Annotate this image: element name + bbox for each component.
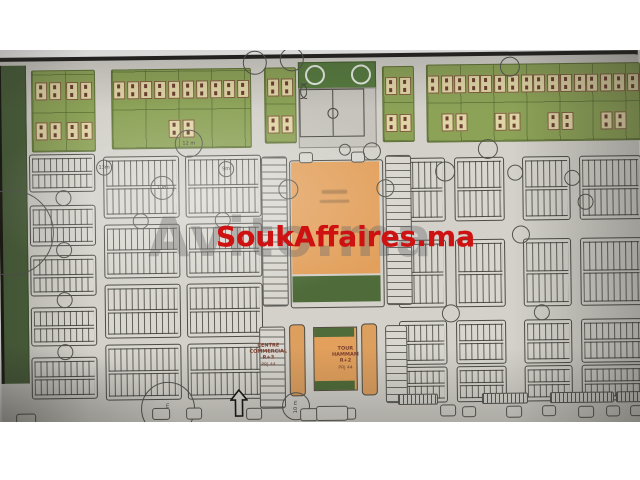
villa-plot-pair	[113, 81, 139, 99]
villa-plot	[547, 74, 559, 92]
villa-plot	[35, 122, 47, 140]
souk-entrance-tab	[299, 152, 313, 163]
roundabout-circle	[577, 194, 593, 210]
villa-plot	[547, 112, 559, 130]
roundabout-circle	[339, 144, 351, 156]
road-width-label: 13m	[98, 165, 109, 170]
up-arrow-icon	[230, 389, 248, 417]
tour-hammam-label: TOURHAMMAM R+2PRJ 44	[325, 345, 365, 371]
villa-plot-pair	[480, 75, 506, 93]
stadium-park	[298, 61, 376, 90]
roundabout-circle: 10m	[150, 176, 174, 200]
hammam-green-top	[314, 328, 354, 337]
parcel-lane	[457, 161, 501, 189]
villa-plot	[127, 81, 139, 99]
villa-plot-pair	[427, 75, 453, 93]
villa-plot	[455, 113, 467, 131]
parcel-lane	[583, 272, 639, 302]
road-width-label: 9m	[222, 167, 230, 172]
villa-plot	[508, 113, 520, 131]
villa-plot	[49, 82, 61, 100]
parcel-lane	[403, 370, 445, 384]
screenshot-root: CENTRECOMMERCIAL R+3PRJ 44TOURHAMMAM R+2…	[0, 0, 640, 480]
parcel-lane	[526, 242, 568, 272]
roundabout-circle	[534, 304, 550, 320]
villa-plot	[574, 74, 586, 92]
villa-plot	[168, 80, 180, 98]
villa-plot-pair	[385, 113, 411, 131]
villa-plot	[399, 76, 411, 94]
villa-plot	[281, 115, 293, 133]
parcel-lane	[582, 159, 638, 187]
villa-plot	[66, 122, 78, 140]
hatched-parking-bar	[482, 392, 528, 404]
road-width-label: 10 m	[293, 400, 298, 413]
road-width-label: 12 m	[182, 141, 195, 146]
villa-plot	[237, 79, 249, 97]
villa-plot	[182, 80, 194, 98]
villa-plot	[454, 75, 466, 93]
villa-plot-pair	[613, 73, 639, 91]
souk-text-smudge	[320, 200, 350, 203]
roundabout-circle	[57, 292, 73, 308]
roundabout-circle	[376, 179, 394, 197]
villa-plot	[600, 111, 612, 129]
roundabout-circle: 12 m	[175, 129, 203, 157]
parcel-lane	[459, 324, 503, 342]
parking-tab	[630, 405, 640, 416]
parking-tab	[316, 406, 348, 421]
hammam-green-bottom	[315, 381, 355, 390]
parcel-lane	[34, 361, 94, 378]
villa-plot	[113, 81, 125, 99]
parcel-block	[580, 237, 640, 306]
parcel-lane	[528, 369, 570, 383]
villa-plot-pair	[223, 79, 249, 97]
villa-plot	[614, 111, 626, 129]
roundabout-circle	[442, 304, 460, 322]
villa-plot	[80, 122, 92, 140]
road-width-label: 10m	[157, 185, 168, 190]
hatched-parking-bar	[550, 391, 614, 403]
parcel-lane	[527, 323, 569, 341]
villa-plot	[210, 80, 222, 98]
villa-plot	[613, 73, 625, 91]
villa-plot	[385, 77, 397, 95]
roundabout-circle: 13m	[96, 160, 112, 176]
roundabout-circle	[507, 165, 523, 181]
roundabout-circle	[478, 139, 498, 159]
souk-green-band	[292, 275, 380, 302]
villa-plot	[586, 74, 598, 92]
park-circle-icon	[351, 64, 371, 84]
roundabout-circle	[56, 242, 72, 258]
villa-plot	[267, 115, 279, 133]
villa-plot	[196, 80, 208, 98]
villa-plot	[35, 82, 47, 100]
parcel-lane	[527, 342, 569, 360]
parcel-lane	[525, 160, 567, 188]
villa-plot-pair	[66, 122, 92, 140]
pitch-arc-right	[300, 83, 307, 99]
villa-plot	[494, 75, 506, 93]
parcel-block	[579, 155, 640, 220]
parking-tab	[246, 408, 262, 420]
roundabout-circle	[278, 179, 298, 199]
parcel-block	[29, 154, 95, 193]
parcel-block	[456, 320, 507, 365]
villa-plot-pair	[196, 80, 222, 98]
villa-plot-pair	[267, 115, 293, 133]
villa-plot	[66, 82, 78, 100]
park-circle-icon	[305, 65, 325, 85]
villa-block	[264, 67, 297, 143]
roundabout-circle	[512, 225, 530, 243]
villa-plot	[600, 73, 612, 91]
commercial-building-bar	[289, 324, 306, 396]
roundabout-circle	[55, 190, 71, 206]
parcel-block	[187, 283, 264, 338]
parcel-lane	[191, 372, 261, 396]
parcel-lane	[33, 276, 93, 292]
souk-text-smudge	[321, 190, 347, 194]
villa-plot	[281, 78, 293, 96]
villa-plot	[533, 74, 545, 92]
parcel-lane	[34, 327, 94, 342]
parcel-block	[105, 284, 182, 339]
parcel-block	[524, 319, 573, 364]
villa-plot-pair	[547, 112, 573, 130]
parking-tab	[440, 404, 456, 416]
villa-plot-pair	[533, 74, 559, 92]
parcel-lane	[525, 189, 567, 217]
parcel-lane	[458, 274, 502, 304]
parcel-lane	[108, 312, 178, 335]
villa-plot	[80, 82, 92, 100]
plan-photo: CENTRECOMMERCIAL R+3PRJ 44TOURHAMMAM R+2…	[0, 50, 640, 422]
villa-plot-pair	[35, 122, 61, 140]
parking-tab	[542, 405, 556, 416]
parcel-lane	[108, 288, 178, 311]
villa-plot	[560, 74, 572, 92]
villa-plot-pair	[494, 113, 520, 131]
watermark-soukaffaires: SoukAffaires.ma	[216, 220, 475, 253]
villa-block	[382, 66, 415, 142]
roundabout-circle	[435, 161, 455, 181]
parcel-lane	[108, 348, 178, 372]
villa-plot-pair	[600, 111, 626, 129]
parcel-lane	[35, 379, 95, 396]
villa-plot	[399, 113, 411, 131]
villa-plot	[480, 75, 492, 93]
villa-block	[426, 62, 640, 143]
parcel-lane	[32, 174, 92, 189]
villa-plot	[385, 114, 397, 132]
villa-plot	[267, 78, 279, 96]
parking-strip	[385, 325, 408, 403]
parcel-lane	[526, 273, 568, 303]
villa-plot-pair	[66, 82, 92, 100]
villa-plot	[521, 74, 533, 92]
roundabout-circle	[57, 344, 73, 360]
roundabout-circle	[243, 51, 267, 75]
parcel-lane	[460, 370, 504, 384]
villa-plot	[223, 80, 235, 98]
parcel-block	[31, 357, 98, 400]
roundabout-circle	[500, 57, 520, 77]
villa-plot-pair	[507, 74, 533, 92]
villa-plot-pair	[140, 80, 166, 98]
parcel-lane	[402, 343, 444, 361]
villa-plot	[507, 75, 519, 93]
villa-plot-pair	[267, 78, 293, 96]
parcel-lane	[190, 287, 260, 310]
pitch-markings	[299, 88, 365, 137]
villa-plot-pair	[35, 82, 61, 100]
parcel-block	[523, 238, 572, 307]
villa-block	[31, 70, 96, 153]
parking-tab	[462, 406, 476, 417]
parking-tab	[186, 407, 202, 419]
villa-plot-pair	[441, 113, 467, 131]
parcel-lane	[459, 343, 503, 361]
villa-plot	[561, 112, 573, 130]
villa-plot	[627, 73, 639, 91]
villa-plot-pair	[586, 73, 612, 91]
football-pitch	[298, 87, 377, 148]
parcel-lane	[584, 341, 640, 359]
parcel-block	[522, 156, 571, 221]
roundabout-circle	[564, 170, 580, 186]
villa-plot-pair	[385, 76, 411, 94]
villa-plot	[154, 80, 166, 98]
villa-plot	[441, 75, 453, 93]
parcel-lane	[34, 311, 94, 326]
parking-tab	[16, 413, 36, 422]
parcel-lane	[583, 241, 639, 271]
parcel-lane	[402, 324, 444, 342]
parking-tab	[578, 406, 594, 418]
villa-plot	[441, 113, 453, 131]
roundabout-circle: 9m	[218, 161, 234, 177]
parking-tab	[606, 405, 620, 416]
parcel-lane	[585, 368, 640, 382]
villa-plot	[49, 122, 61, 140]
parcel-block	[31, 307, 97, 347]
parcel-block	[581, 318, 640, 363]
centre-commercial-label: CENTRECOMMERCIAL R+3PRJ 44	[247, 342, 289, 368]
hatched-parking-bar	[398, 394, 438, 405]
roundabout-circle	[133, 213, 149, 229]
villa-plot	[468, 75, 480, 93]
roundabout-circle	[363, 142, 381, 160]
parking-tab	[506, 406, 522, 418]
parcel-lane	[584, 322, 640, 340]
villa-plot	[140, 81, 152, 99]
villa-plot-pair	[168, 80, 194, 98]
villa-plot-pair	[560, 74, 586, 92]
villa-plot-pair	[454, 75, 480, 93]
parcel-lane	[32, 158, 92, 173]
hatched-parking-bar	[616, 391, 640, 402]
parcel-lane	[190, 311, 260, 334]
villa-plot	[494, 113, 506, 131]
villa-plot	[427, 76, 439, 94]
parking-tab	[152, 408, 170, 420]
